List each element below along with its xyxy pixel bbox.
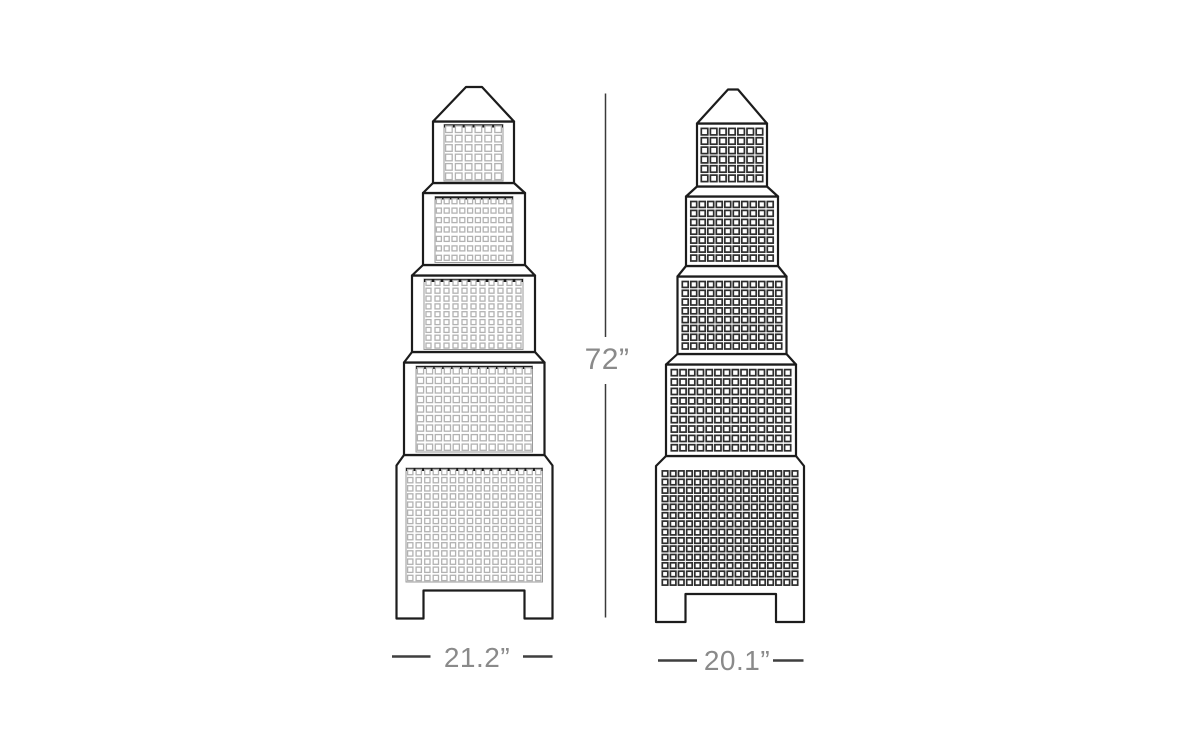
side-tier-2-cap (686, 187, 778, 197)
front-width-dimension-label: 21.2” (444, 642, 510, 674)
side-width-dimension-label: 20.1” (704, 645, 770, 677)
front-tier-3-cap (412, 265, 535, 276)
side-view (656, 90, 804, 623)
front-tier-4-cap (404, 352, 545, 363)
side-pyramid-top (697, 90, 767, 124)
height-dimension-label: 72” (585, 343, 630, 377)
front-pyramid-top (433, 87, 514, 122)
front-tier-2-cap (423, 183, 525, 193)
side-tier-3-cap (678, 266, 787, 277)
side-tier-4-cap (666, 354, 796, 365)
front-view (397, 87, 553, 619)
product-dimension-diagram: 72” 21.2” 20.1” (0, 0, 1200, 736)
